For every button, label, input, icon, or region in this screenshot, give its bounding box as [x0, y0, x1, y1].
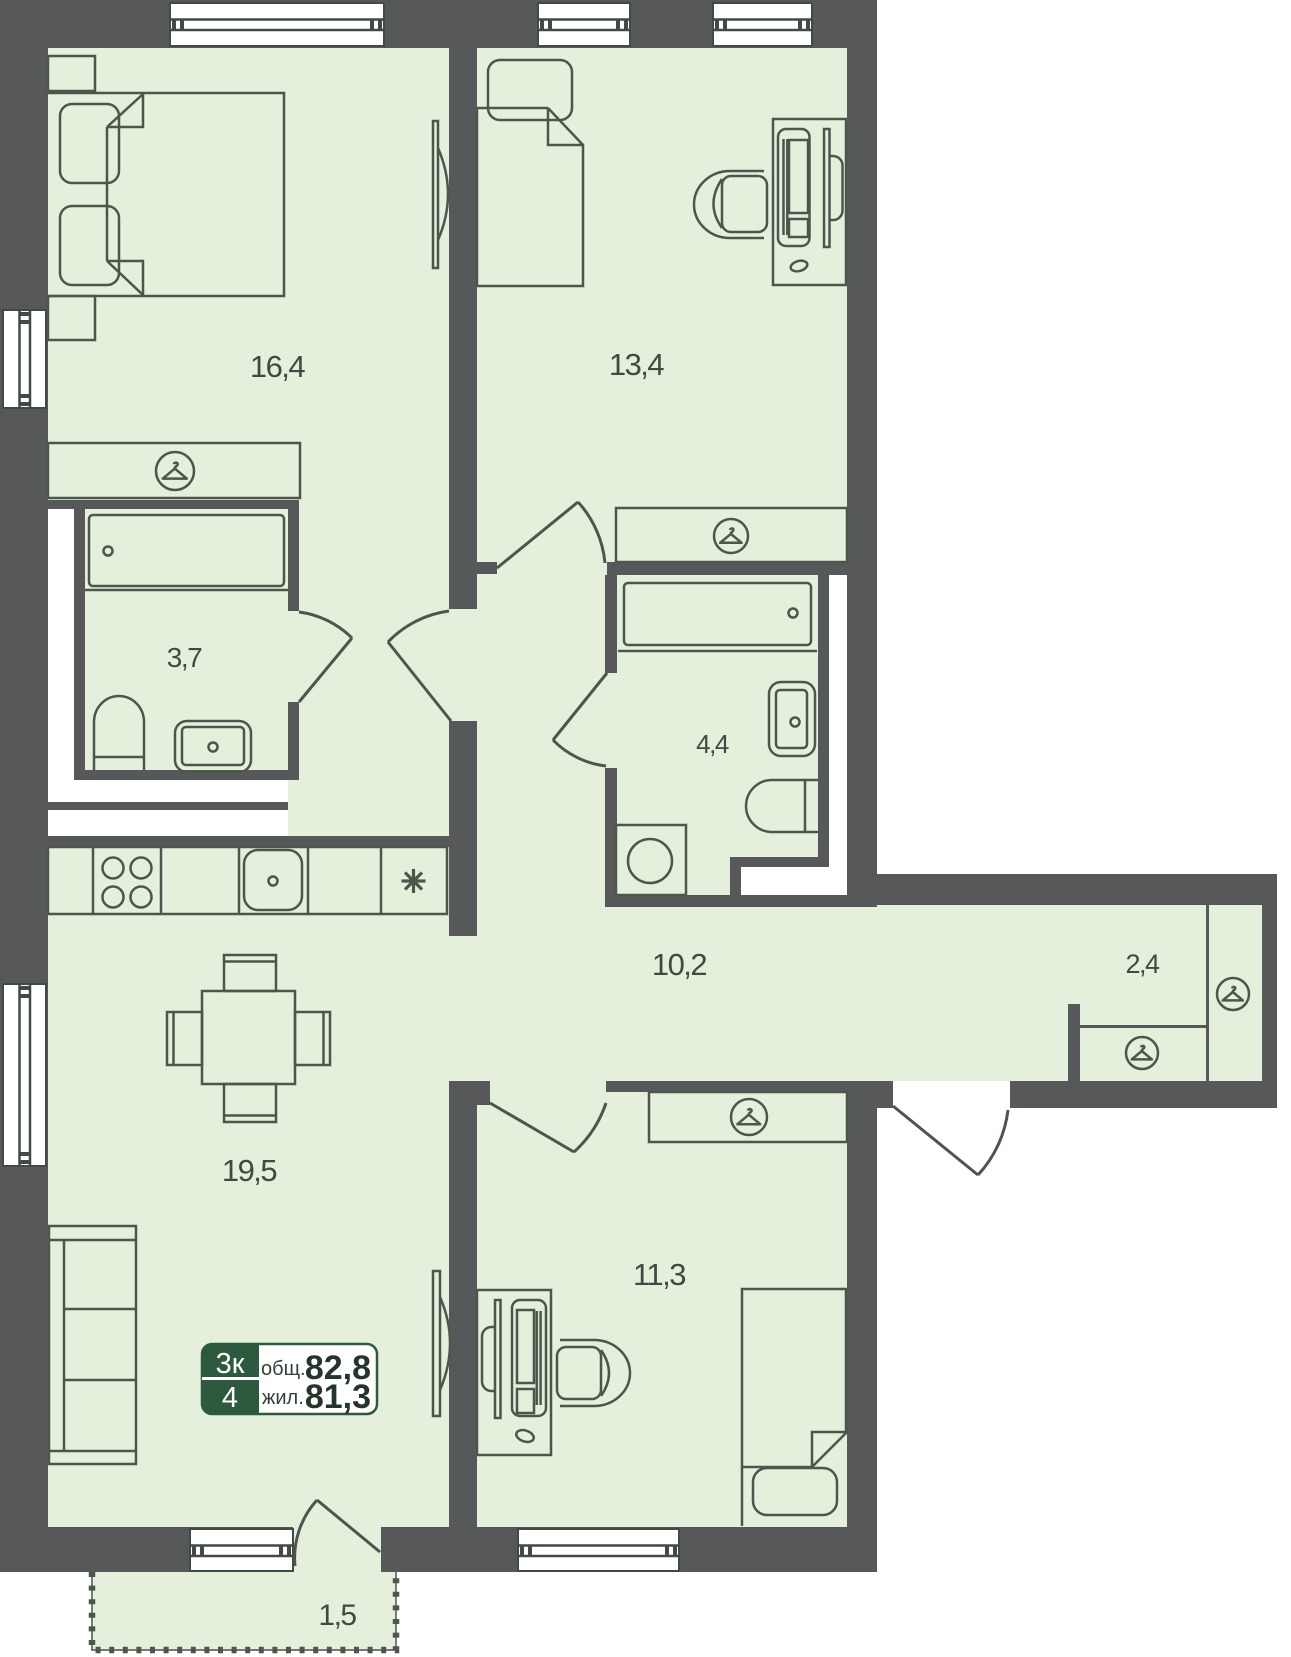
svg-text:11,3: 11,3 — [633, 1257, 685, 1292]
svg-text:общ.: общ. — [261, 1358, 306, 1380]
svg-text:4: 4 — [222, 1382, 238, 1414]
svg-text:4,4: 4,4 — [696, 729, 729, 759]
svg-text:16,4: 16,4 — [250, 349, 306, 384]
svg-text:13,4: 13,4 — [609, 347, 665, 382]
svg-text:3к: 3к — [216, 1348, 245, 1380]
svg-text:1,5: 1,5 — [318, 1599, 356, 1632]
svg-text:10,2: 10,2 — [652, 947, 707, 982]
svg-text:жил.: жил. — [262, 1387, 304, 1409]
svg-text:81,3: 81,3 — [305, 1378, 371, 1416]
svg-text:2,4: 2,4 — [1125, 949, 1160, 979]
svg-text:3,7: 3,7 — [167, 642, 202, 673]
svg-text:19,5: 19,5 — [222, 1153, 277, 1188]
